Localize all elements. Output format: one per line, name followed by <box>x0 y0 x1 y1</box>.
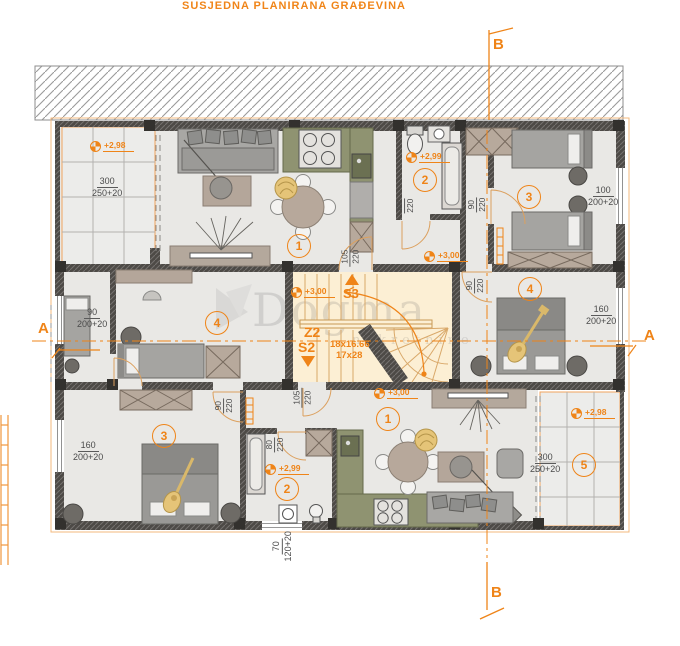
room-number-2-upper: 2 <box>413 168 437 192</box>
dim-terrace-bottom: 300250+20 <box>530 452 560 475</box>
room-number-4-middle: 4 <box>205 311 229 335</box>
benchmark-icon <box>571 408 582 419</box>
elevation-marker: +3,00 <box>424 251 468 262</box>
room-number-3-upper: 3 <box>517 185 541 209</box>
wardrobe-hall-upper <box>466 128 518 155</box>
section-marker-a-left: A <box>38 320 49 337</box>
door-dim-room3-lower: 90220 <box>213 398 234 413</box>
room-number-5-terrace: 5 <box>572 453 596 477</box>
door-dim-stair-lower: 105220 <box>291 388 312 408</box>
room-number-4-right: 4 <box>518 277 542 301</box>
dim-window-left-1: 90200+20 <box>77 307 107 330</box>
edge-stair-strip <box>1 415 8 565</box>
desk-chair-upper <box>203 176 251 206</box>
section-marker-b-bottom: B <box>491 584 502 601</box>
stair-label-s2: S2 <box>298 339 315 355</box>
dim-window-bottom: 70120+20 <box>271 531 294 561</box>
dim-window-right-1: 100200+20 <box>588 185 618 208</box>
stair-label-s3: S3 <box>343 286 359 301</box>
stair-down-arrow <box>301 356 315 367</box>
benchmark-icon <box>265 464 276 475</box>
dim-window-right-2: 160200+20 <box>586 304 616 327</box>
floor-plan-canvas: Dogma nekretnine <box>0 0 680 646</box>
benchmark-icon <box>291 287 302 298</box>
room-number-2-lower: 2 <box>275 477 299 501</box>
stair-up-arrow <box>345 274 359 285</box>
dim-window-left-2: 160200+20 <box>73 440 103 463</box>
door-dim-room3-upper: 90220 <box>466 197 487 212</box>
benchmark-icon <box>374 388 385 399</box>
stair-steps-line1: 18x16.66 <box>330 339 370 350</box>
stair-steps-line2: 17x28 <box>336 350 362 361</box>
door-dim-room4-right: 90220 <box>464 278 485 293</box>
elevation-marker: +2,98 <box>90 141 134 152</box>
section-marker-a-right: A <box>644 327 655 344</box>
plant-upper <box>275 177 297 199</box>
elevation-marker: +2,99 <box>406 152 450 163</box>
svg-text:Dogma: Dogma <box>252 283 427 337</box>
door-dim-bath-upper: 80220 <box>394 198 415 213</box>
elevation-marker: +3,00 <box>374 388 418 399</box>
benchmark-icon <box>406 152 417 163</box>
door-dim-stair-upper: 105220 <box>339 247 360 267</box>
stair-label-z2: Z2 <box>304 324 320 340</box>
room-number-1-upper: 1 <box>287 234 311 258</box>
neighbor-building-band <box>35 66 623 120</box>
section-marker-b-top: B <box>493 36 504 53</box>
dim-terrace-top: 300250+20 <box>92 176 122 199</box>
door-dim-bath-lower: 80220 <box>264 437 285 452</box>
room-number-3-lower: 3 <box>152 424 176 448</box>
benchmark-icon <box>90 141 101 152</box>
elevation-marker: +2,99 <box>265 464 309 475</box>
benchmark-icon <box>424 251 435 262</box>
elevation-marker: +3,00 <box>291 287 335 298</box>
room-number-1-lower: 1 <box>376 407 400 431</box>
elevation-marker: +2,98 <box>571 408 615 419</box>
